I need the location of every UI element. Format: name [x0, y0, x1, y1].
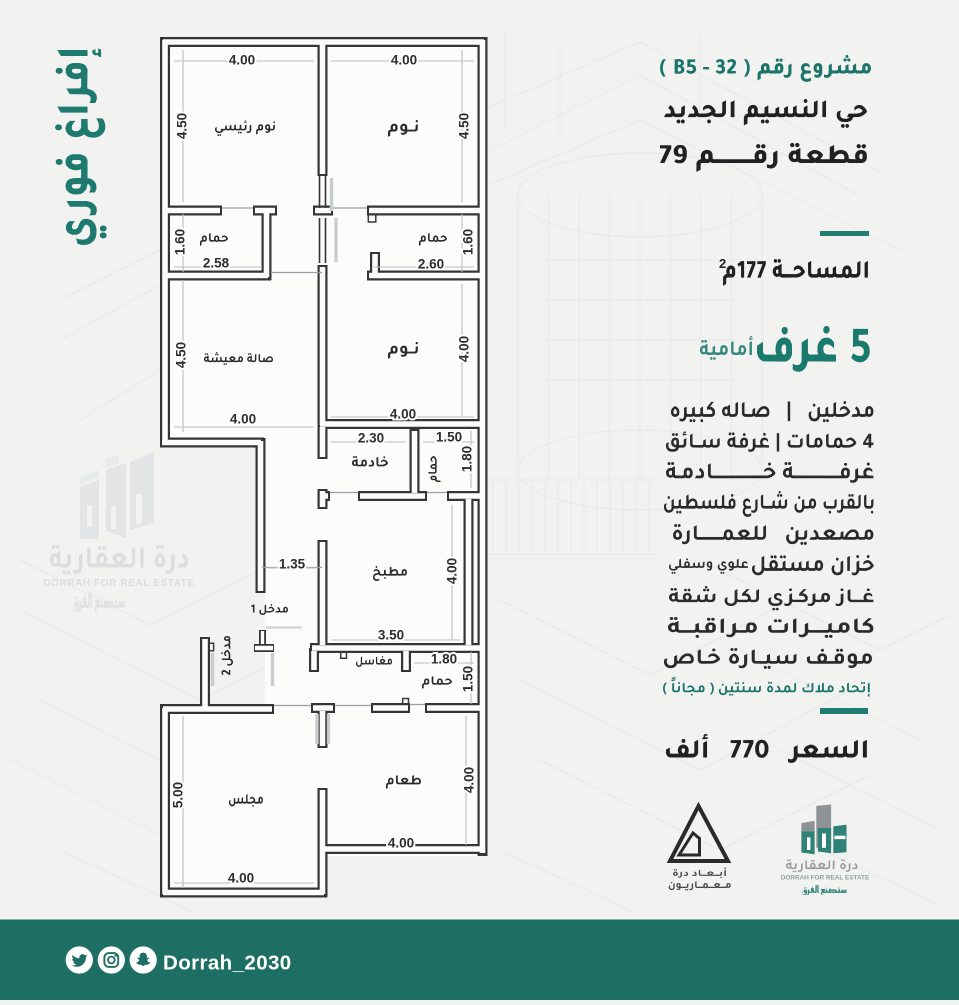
- svg-text:4.00: 4.00: [228, 871, 254, 886]
- svg-text:1.60: 1.60: [461, 229, 476, 255]
- svg-text:4.50: 4.50: [174, 342, 189, 368]
- svg-text:2: 2: [719, 256, 726, 271]
- svg-text:1.60: 1.60: [173, 229, 188, 255]
- svg-text:1.80: 1.80: [431, 652, 457, 667]
- svg-text:2.58: 2.58: [203, 256, 230, 271]
- svg-text:DORRAH FOR REAL ESTATE: DORRAH FOR REAL ESTATE: [43, 578, 195, 589]
- svg-text:4.00: 4.00: [457, 336, 472, 362]
- svg-text:2.30: 2.30: [358, 431, 384, 446]
- svg-text:1.50: 1.50: [461, 666, 476, 692]
- svg-text:2.60: 2.60: [418, 257, 444, 272]
- svg-text:4.50: 4.50: [457, 113, 472, 139]
- svg-text:4.00: 4.00: [462, 767, 477, 793]
- svg-text:4.00: 4.00: [445, 558, 460, 584]
- svg-text:3.50: 3.50: [378, 628, 404, 643]
- svg-text:4.00: 4.00: [390, 407, 416, 422]
- svg-text:1.80: 1.80: [460, 446, 475, 472]
- svg-text:Dorrah_2030: Dorrah_2030: [163, 952, 292, 975]
- svg-text:4.00: 4.00: [391, 53, 417, 68]
- svg-text:4.00: 4.00: [388, 836, 414, 851]
- svg-text:5.00: 5.00: [171, 782, 186, 808]
- svg-text:4.00: 4.00: [230, 412, 256, 427]
- svg-text:1.35: 1.35: [279, 557, 306, 572]
- svg-text:DORRAH FOR REAL ESTATE: DORRAH FOR REAL ESTATE: [781, 875, 870, 882]
- svg-text:1.50: 1.50: [436, 430, 462, 445]
- svg-text:4.50: 4.50: [175, 113, 190, 139]
- svg-text:4.00: 4.00: [229, 53, 255, 68]
